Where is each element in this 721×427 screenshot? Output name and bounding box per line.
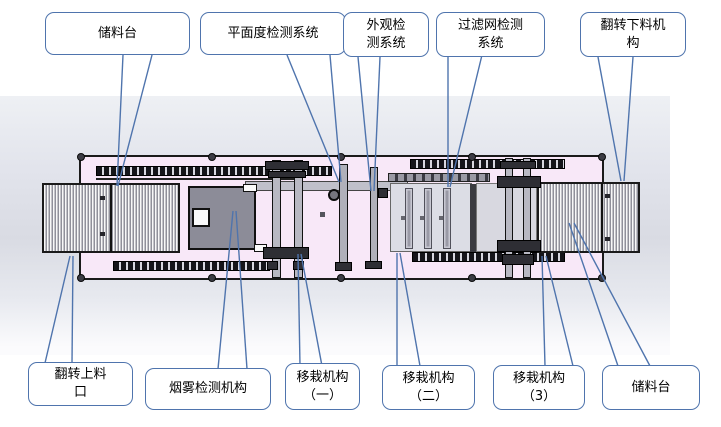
transfer3-top-block xyxy=(500,161,536,169)
frame-bolt xyxy=(208,153,216,161)
frame-bolt xyxy=(77,274,85,282)
frame-bolt xyxy=(208,274,216,282)
transfer3-bottom-carriage xyxy=(497,240,541,252)
bottom-guide-rail-left xyxy=(113,261,270,271)
callout-bottom-storage: 储料台 xyxy=(602,365,700,410)
callout-flip-load: 翻转上料 口 xyxy=(28,362,133,406)
transfer1-top-block xyxy=(268,171,306,178)
callout-transfer-1: 移栽机构 （一） xyxy=(285,363,360,410)
callout-label: 外观检 测系统 xyxy=(366,17,405,52)
top-sub-rail-right xyxy=(388,173,490,182)
diagram-canvas: 储料台 平面度检测系统 外观检 测系统 过滤网检测 系统 翻转下料机 构 翻转上… xyxy=(0,0,721,427)
callout-transfer-2: 移栽机构 （二） xyxy=(382,365,475,410)
slot-sensor-2 xyxy=(420,216,424,220)
storage-conveyor-right xyxy=(537,182,640,253)
filter-slot-1 xyxy=(405,188,413,249)
left-conveyor-divider xyxy=(110,184,112,252)
left-conveyor-sensor-a xyxy=(100,196,105,200)
callout-label: 过滤网检测 系统 xyxy=(458,17,523,52)
callout-flatness-system: 平面度检测系统 xyxy=(200,12,346,55)
transfer1-top-carriage xyxy=(265,161,309,170)
callout-label: 翻转下料机 构 xyxy=(600,17,665,52)
callout-flip-unload: 翻转下料机 构 xyxy=(580,12,686,57)
callout-top-storage: 储料台 xyxy=(45,12,190,55)
filter-slot-2 xyxy=(424,188,432,249)
callout-label: 移栽机构 （3） xyxy=(513,370,565,405)
transfer1-bottom-carriage xyxy=(263,247,309,259)
callout-appearance-system: 外观检 测系统 xyxy=(343,12,429,57)
callout-label: 储料台 xyxy=(98,25,137,43)
callout-filter-system: 过滤网检测 系统 xyxy=(436,12,545,57)
smoke-unit-window xyxy=(192,208,210,227)
top-guide-line-left xyxy=(96,178,300,180)
frame-bolt xyxy=(337,153,345,161)
callout-label: 移栽机构 （一） xyxy=(296,369,348,404)
appearance-foot xyxy=(365,261,382,269)
right-conveyor-divider xyxy=(601,183,603,252)
left-conveyor-sensor-b xyxy=(100,232,105,236)
slot-sensor-1 xyxy=(401,216,405,220)
frame-bolt xyxy=(598,153,606,161)
callout-label: 平面度检测系统 xyxy=(227,25,318,43)
callout-label: 储料台 xyxy=(631,379,670,397)
callout-transfer-3: 移栽机构 （3） xyxy=(493,365,585,410)
flatness-detection-probe xyxy=(339,164,348,268)
slot-sensor-3 xyxy=(439,216,443,220)
top-guide-rail-right xyxy=(410,159,565,169)
flatness-foot xyxy=(335,262,352,271)
callout-label: 烟雾检测机构 xyxy=(169,380,247,398)
bottom-guide-rail-right xyxy=(412,252,565,262)
small-bracket-top xyxy=(243,184,257,192)
frame-bolt xyxy=(468,153,476,161)
small-sensor-block xyxy=(320,212,325,217)
transfer3-top-carriage xyxy=(497,176,541,188)
filter-slot-3 xyxy=(443,188,451,249)
transfer3-bottom-block xyxy=(502,254,534,265)
frame-bolt xyxy=(598,274,606,282)
right-conveyor-sensor-a xyxy=(605,194,610,198)
appearance-detection-probe xyxy=(370,167,378,268)
transfer1-foot-b xyxy=(293,261,304,270)
transfer1-foot-a xyxy=(267,261,278,270)
frame-bolt xyxy=(77,153,85,161)
callout-label: 翻转上料 口 xyxy=(54,366,106,401)
right-conveyor-sensor-b xyxy=(605,237,610,241)
frame-bolt xyxy=(468,274,476,282)
callout-label: 移栽机构 （二） xyxy=(402,370,454,405)
appearance-camera-bracket xyxy=(378,188,388,198)
callout-smoke-detect: 烟雾检测机构 xyxy=(145,368,271,410)
frame-bolt xyxy=(337,274,345,282)
